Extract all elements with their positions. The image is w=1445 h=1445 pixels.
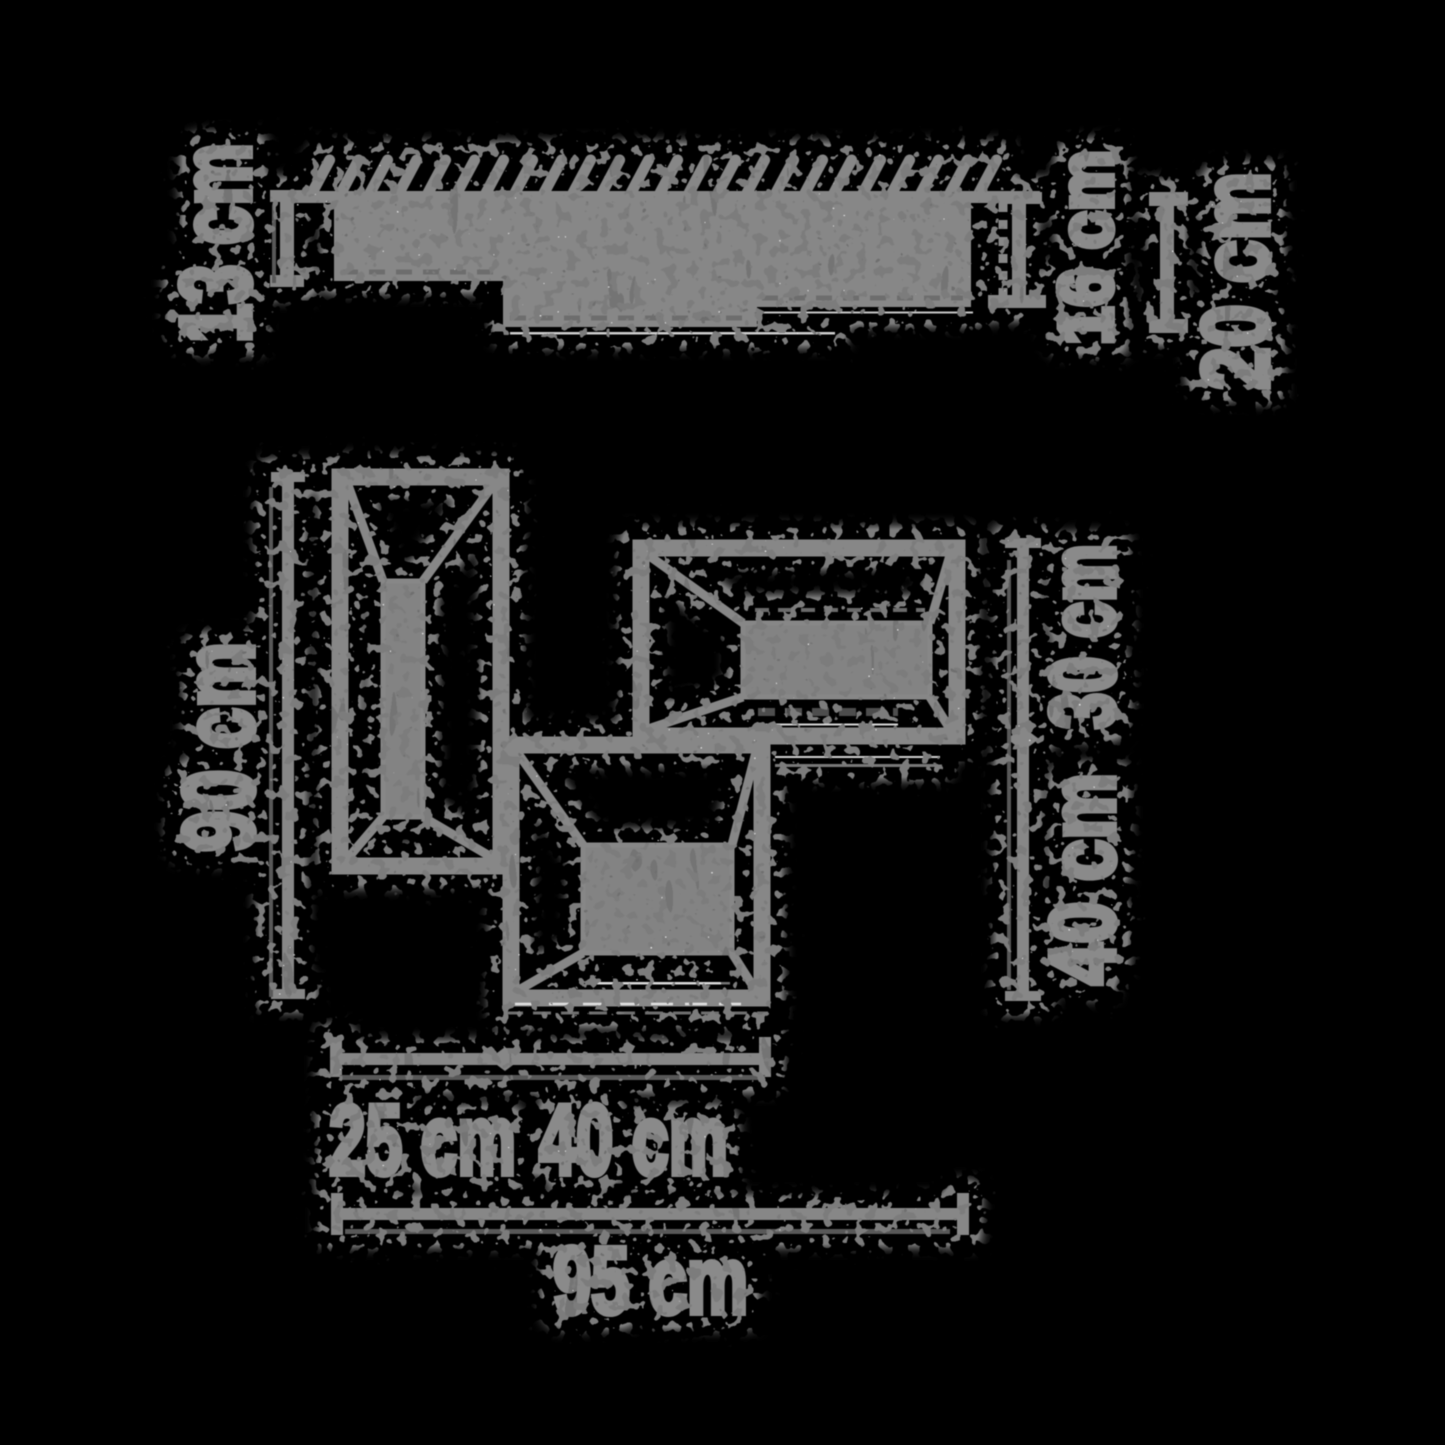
svg-text:13 cm: 13 cm bbox=[160, 143, 272, 343]
svg-text:40 cm: 40 cm bbox=[1032, 773, 1134, 985]
svg-text:30 cm: 30 cm bbox=[1032, 544, 1134, 729]
svg-text:40 cm: 40 cm bbox=[539, 1084, 728, 1195]
svg-text:16 cm: 16 cm bbox=[1044, 150, 1129, 345]
svg-text:20 cm: 20 cm bbox=[1183, 172, 1289, 390]
svg-text:95 cm: 95 cm bbox=[553, 1228, 748, 1334]
svg-text:25 cm: 25 cm bbox=[329, 1084, 516, 1195]
svg-text:90 cm: 90 cm bbox=[163, 642, 275, 852]
